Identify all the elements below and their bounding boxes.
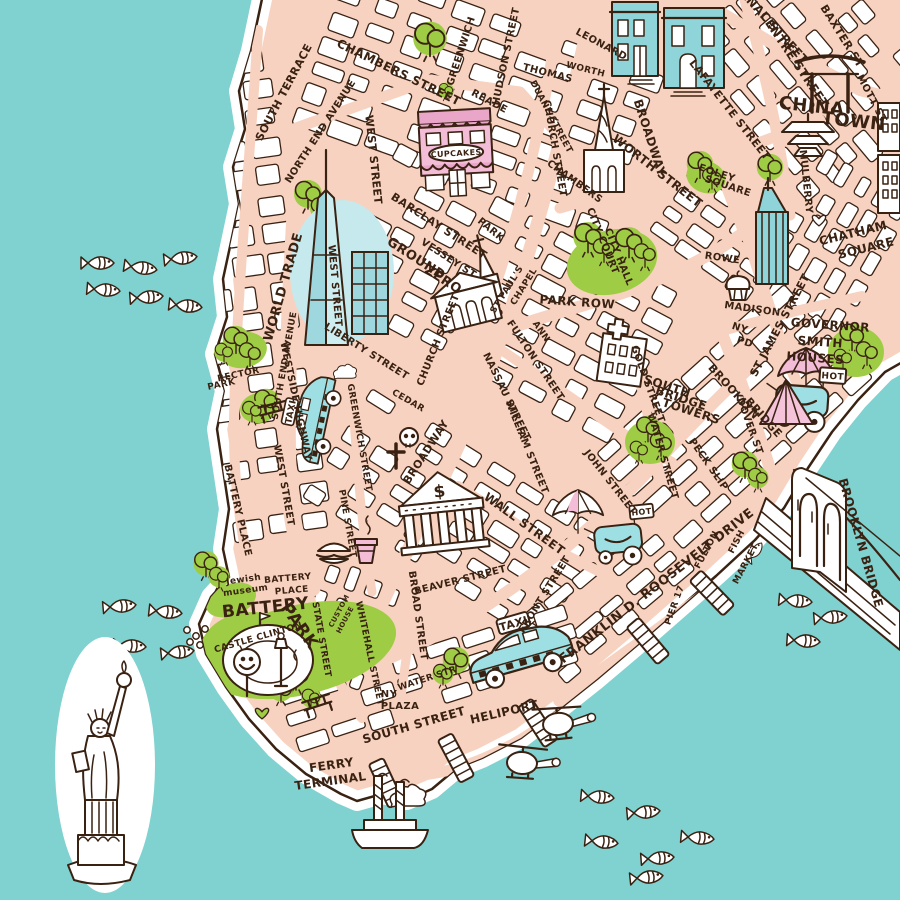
map-label: PLAZA — [381, 701, 419, 712]
pebble-icon — [197, 642, 203, 648]
statue-of-liberty-icon — [55, 637, 155, 893]
city-block — [255, 164, 280, 186]
map-canvas: TAXI TAXI HOT — [0, 0, 900, 900]
map-label: NY — [381, 689, 398, 700]
city-block — [258, 195, 286, 217]
illustrated-map-lower-manhattan: TAXI TAXI HOT — [0, 0, 900, 900]
pebble-icon — [202, 626, 208, 632]
city-block — [251, 137, 282, 159]
pebble-icon — [187, 639, 193, 645]
cupcake-shop: CUPCAKES — [418, 108, 494, 198]
hot-sign: HOT — [821, 371, 845, 383]
skull-icon — [400, 428, 418, 447]
city-block — [301, 511, 328, 530]
dollar-sign: $ — [433, 481, 447, 502]
pebble-icon — [193, 633, 199, 639]
pebble-icon — [184, 627, 190, 633]
